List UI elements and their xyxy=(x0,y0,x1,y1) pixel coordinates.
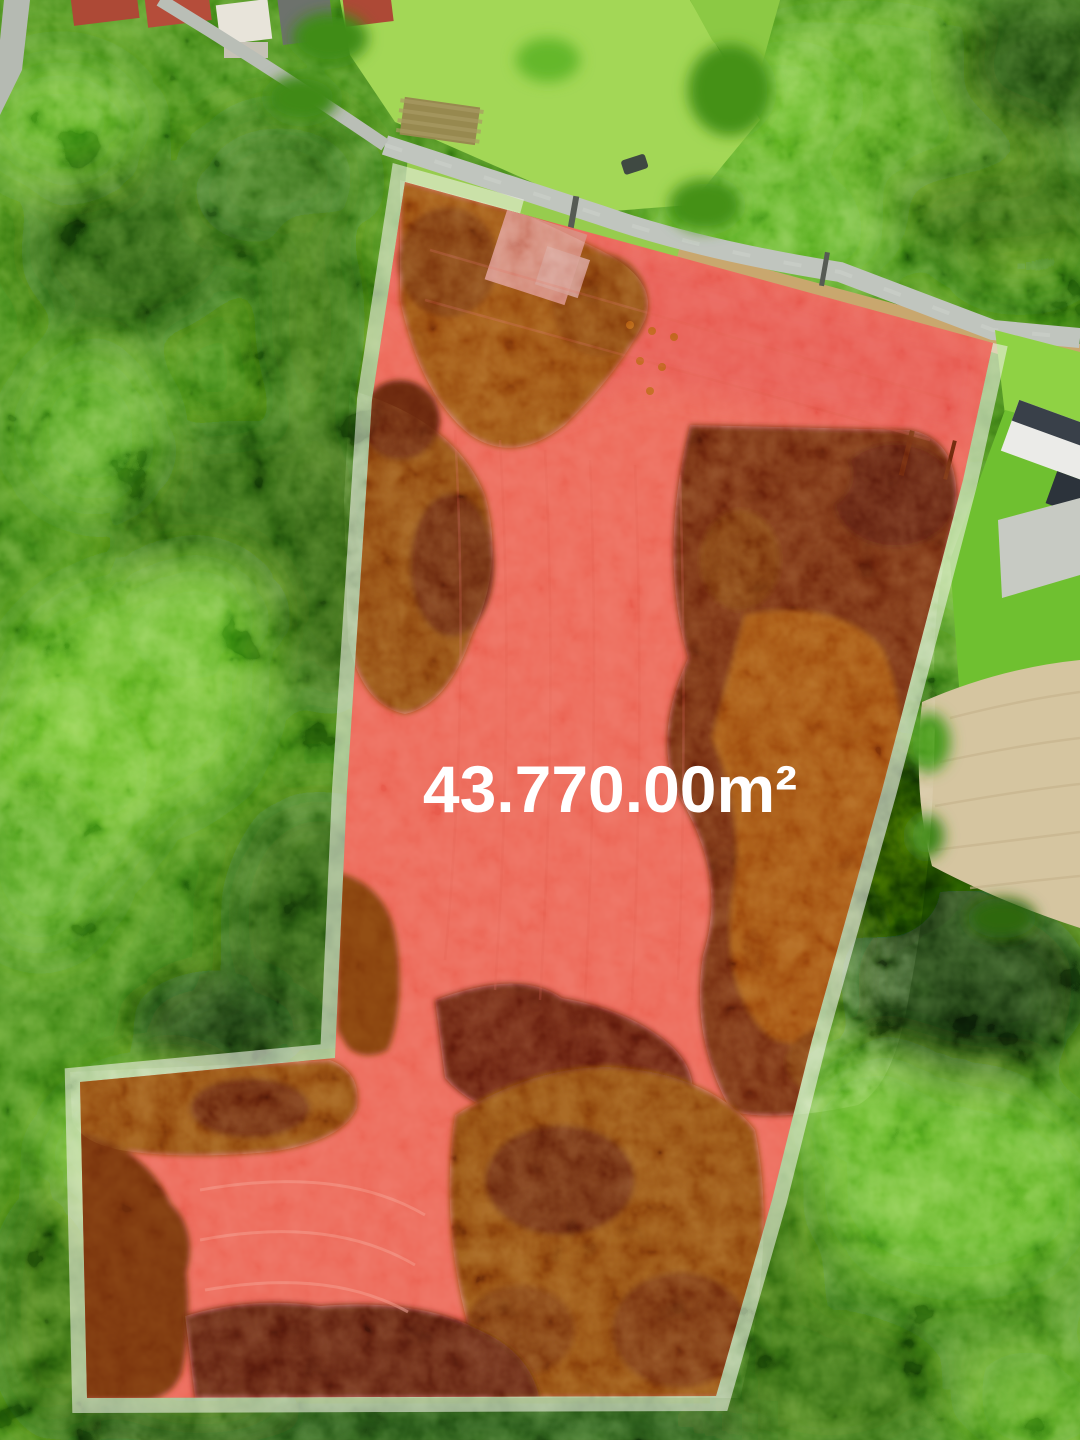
svg-text:43.770.00m²: 43.770.00m² xyxy=(423,752,797,826)
